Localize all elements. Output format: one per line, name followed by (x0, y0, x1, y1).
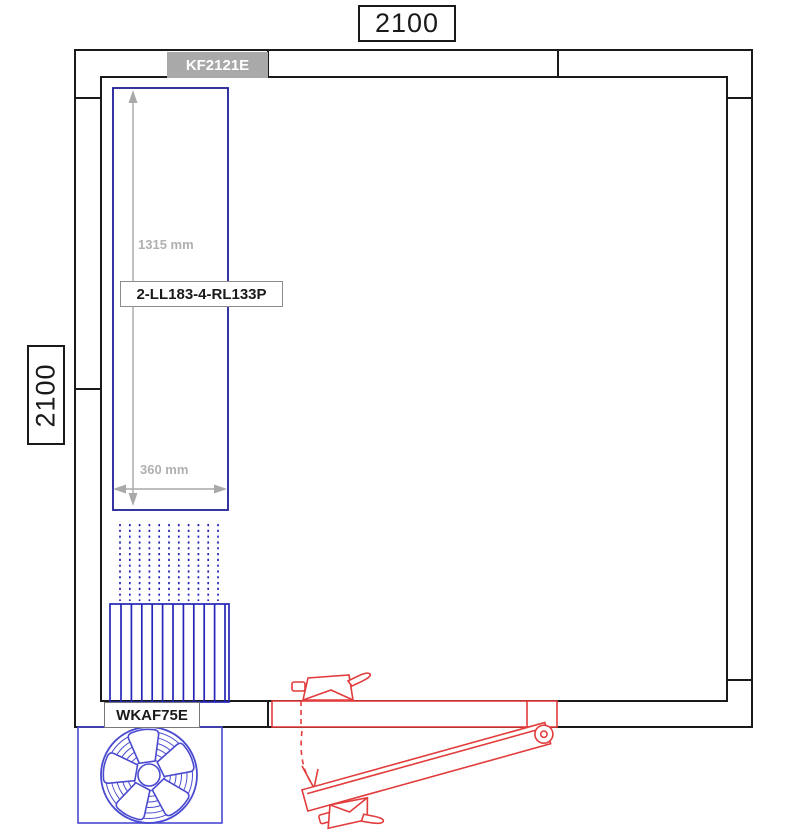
wall-inner-outline (101, 77, 727, 701)
room-width-dimension-box: 2100 (358, 5, 456, 42)
condenser-fan-unit (78, 727, 222, 823)
dim-arrow-right (214, 485, 227, 494)
door (272, 673, 564, 835)
door-open-leaf (302, 721, 564, 835)
shelving-model: 2-LL183-4-RL133P (136, 286, 266, 303)
dim-arrow-left (113, 485, 126, 494)
dim-arrow-up (129, 90, 138, 103)
fan-unit-label: WKAF75E (104, 702, 200, 728)
door-frame-closed (272, 701, 557, 727)
shelving-label: 2-LL183-4-RL133P (120, 281, 283, 307)
shelf-length-value: 1315 mm (138, 237, 194, 252)
room-depth-value: 2100 (31, 363, 62, 427)
floor-plan-drawing: 2100 2100 KF2121E 1315 mm 2-LL183-4-RL13… (0, 0, 811, 835)
shelf-width-dimension (113, 485, 227, 494)
room-depth-dimension-box: 2100 (27, 345, 65, 445)
wall-outer-outline (75, 50, 752, 727)
fan-unit-model: WKAF75E (116, 707, 188, 724)
evaporator-coil (110, 604, 229, 702)
ceiling-unit-label: KF2121E (167, 52, 268, 78)
door-swing-arrowhead (302, 766, 318, 788)
dim-arrow-down (129, 493, 138, 506)
airflow-dotted-lines (120, 524, 218, 601)
door-handle-closed-icon (292, 673, 370, 700)
fan-icon (101, 727, 197, 823)
shelf-width-label: 360 mm (140, 461, 188, 477)
ceiling-unit-model: KF2121E (186, 57, 249, 74)
door-swing-arc (301, 731, 312, 784)
shelf-length-label: 1315 mm (138, 236, 194, 252)
shelf-width-value: 360 mm (140, 462, 188, 477)
room-walls (75, 50, 752, 727)
room-width-value: 2100 (375, 8, 439, 39)
